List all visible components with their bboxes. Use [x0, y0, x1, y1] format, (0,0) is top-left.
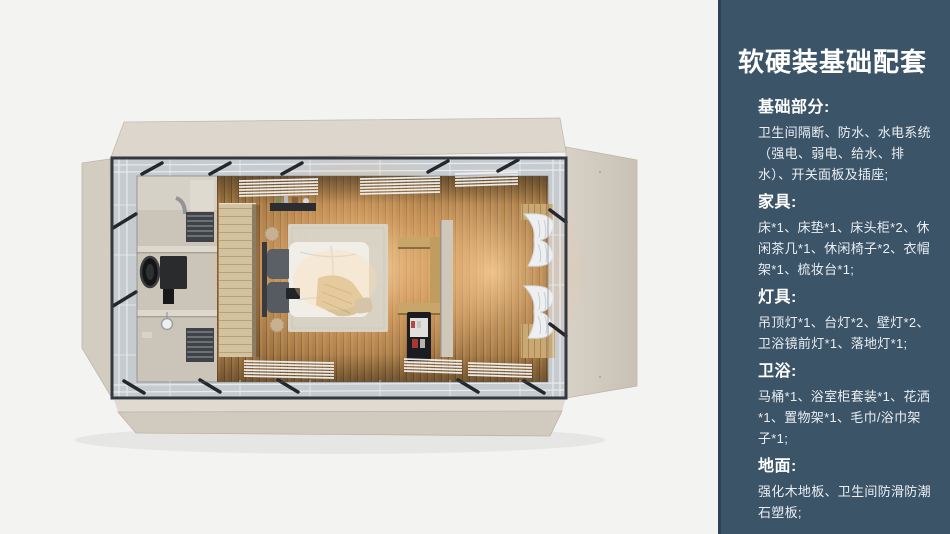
section-body: 强化木地板、卫生间防滑防潮石塑板;: [758, 481, 932, 523]
vanity-stool: [163, 289, 174, 304]
bathroom-shelf: [137, 246, 217, 253]
shell-top-flap: [110, 118, 566, 160]
panel-sections: 基础部分: 卫生间隔断、防水、水电系统（强电、弱电、给水、排水）、开关面板及插座…: [721, 80, 950, 523]
rattan-pouf: [265, 227, 279, 241]
pillow-dark: [267, 249, 292, 279]
headboard: [262, 242, 267, 317]
section-heading: 地面:: [758, 457, 932, 477]
section-heading: 基础部分:: [758, 98, 932, 118]
shell-bottom-flap-top: [114, 398, 566, 412]
section-heading: 卫浴:: [758, 362, 932, 382]
info-panel: 软硬装基础配套 基础部分: 卫生间隔断、防水、水电系统（强电、弱电、给水、排水）…: [718, 0, 950, 534]
section-body: 卫生间隔断、防水、水电系统（强电、弱电、给水、排水）、开关面板及插座;: [758, 122, 932, 185]
section-body: 吊顶灯*1、台灯*2、壁灯*2、卫浴镜前灯*1、落地灯*1;: [758, 312, 932, 354]
section-bathroom: 卫浴: 马桶*1、浴室柜套装*1、花洒*1、置物架*1、毛巾/浴巾架子*1;: [758, 362, 932, 449]
section-heading: 家具:: [758, 193, 932, 213]
round-mirror: [162, 319, 173, 330]
shell-left-flap: [82, 159, 112, 398]
section-body: 床*1、床垫*1、床头柜*2、休闲茶几*1、休闲椅子*2、衣帽架*1、梳妆台*1…: [758, 217, 932, 280]
wardrobe: [219, 203, 260, 357]
minibar-cart: [407, 312, 431, 361]
shell-bottom-flap: [118, 411, 562, 436]
bathroom-shelf: [137, 310, 217, 317]
slide-canvas: 软硬装基础配套 基础部分: 卫生间隔断、防水、水电系统（强电、弱电、给水、排水）…: [0, 0, 950, 534]
section-furniture: 家具: 床*1、床垫*1、床头柜*2、休闲茶几*1、休闲椅子*2、衣帽架*1、梳…: [758, 193, 932, 280]
vanity-desk: [160, 256, 187, 289]
floor-cushion: [354, 297, 373, 314]
section-flooring: 地面: 强化木地板、卫生间防滑防潮石塑板;: [758, 457, 932, 523]
radiator: [186, 212, 214, 242]
partition-wall: [440, 220, 453, 357]
section-basics: 基础部分: 卫生间隔断、防水、水电系统（强电、弱电、给水、排水）、开关面板及插座…: [758, 98, 932, 185]
room-render: [0, 0, 718, 534]
section-lighting: 灯具: 吊顶灯*1、台灯*2、壁灯*2、卫浴镜前灯*1、落地灯*1;: [758, 288, 932, 354]
radiator: [186, 328, 214, 362]
rattan-pouf: [270, 318, 284, 332]
section-heading: 灯具:: [758, 288, 932, 308]
section-body: 马桶*1、浴室柜套装*1、花洒*1、置物架*1、毛巾/浴巾架子*1;: [758, 386, 932, 449]
panel-title: 软硬装基础配套: [721, 44, 950, 80]
